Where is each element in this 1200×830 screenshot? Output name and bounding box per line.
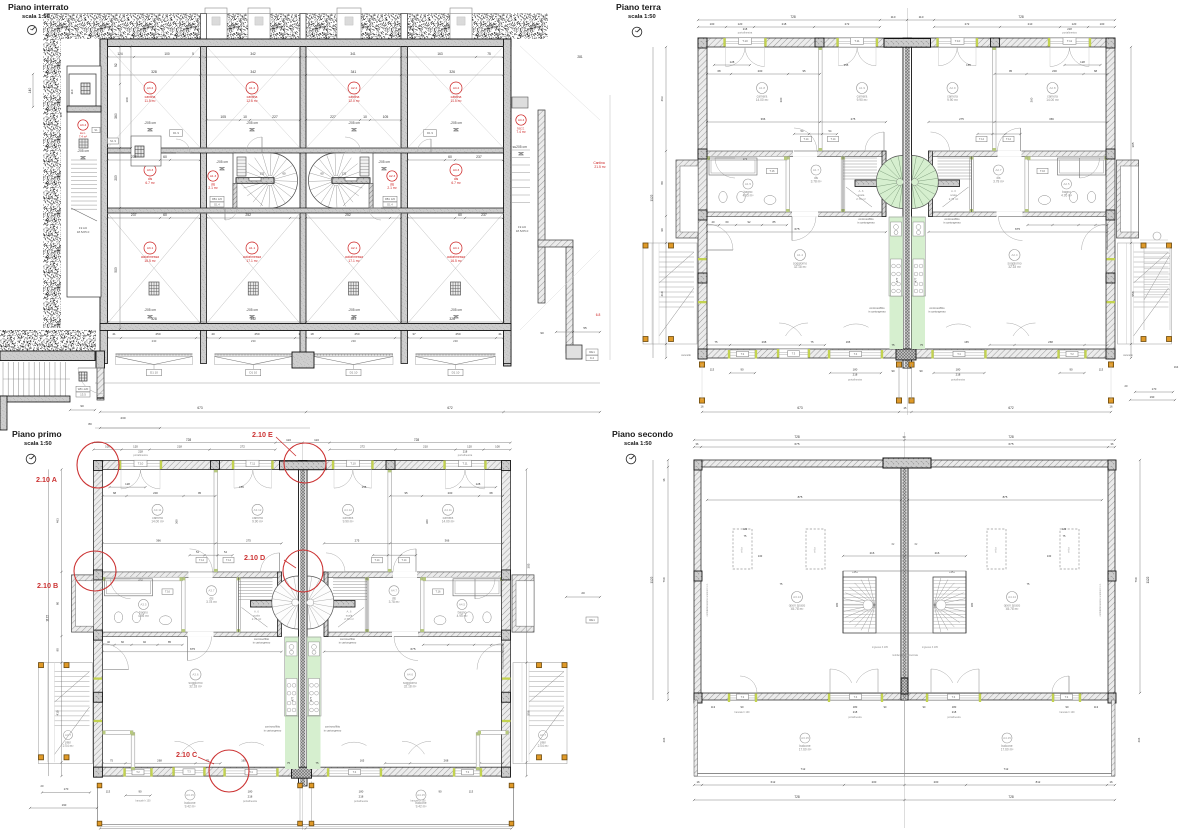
- svg-text:165: 165: [964, 340, 969, 344]
- svg-text:728: 728: [1008, 795, 1014, 799]
- svg-text:in cartongesso: in cartongesso: [857, 221, 875, 225]
- svg-text:268: 268: [157, 758, 162, 762]
- svg-text:728: 728: [414, 438, 420, 442]
- svg-text:675: 675: [794, 227, 799, 231]
- svg-text:9.4: 9.4: [590, 356, 594, 360]
- svg-text:-205 cm: -205 cm: [246, 308, 258, 312]
- svg-text:6.8: 6.8: [596, 313, 601, 317]
- svg-text:velux: velux: [994, 546, 998, 553]
- svg-text:200: 200: [934, 780, 939, 784]
- svg-text:272: 272: [240, 445, 245, 449]
- svg-text:326: 326: [449, 70, 455, 74]
- svg-text:272: 272: [743, 157, 748, 161]
- svg-text:A3.14: A3.14: [793, 595, 801, 599]
- svg-text:366: 366: [445, 538, 450, 542]
- svg-text:16.5 m²: 16.5 m²: [144, 259, 156, 263]
- svg-text:675: 675: [1015, 227, 1020, 231]
- svg-text:9.90 m²: 9.90 m²: [343, 520, 354, 524]
- svg-text:A2.7: A2.7: [995, 168, 1002, 172]
- svg-text:40: 40: [211, 332, 215, 336]
- svg-text:A4.15: A4.15: [417, 793, 425, 797]
- svg-text:T.4: T.4: [249, 770, 253, 774]
- svg-text:portafinestra: portafinestra: [1062, 31, 1077, 35]
- svg-text:90: 90: [138, 790, 142, 794]
- svg-text:9.42 m²: 9.42 m²: [416, 804, 427, 808]
- svg-text:216: 216: [870, 551, 875, 555]
- svg-text:S1 9: S1 9: [110, 139, 116, 143]
- svg-text:-205 cm: -205 cm: [77, 149, 89, 153]
- svg-text:portafinestra: portafinestra: [458, 453, 473, 457]
- svg-text:2.10 A: 2.10 A: [36, 475, 57, 484]
- svg-text:A4.2: A4.2: [453, 86, 460, 90]
- svg-text:95: 95: [404, 491, 408, 495]
- svg-text:227: 227: [330, 115, 336, 119]
- svg-text:controsoffitto: controsoffitto: [858, 217, 874, 221]
- svg-text:132: 132: [342, 172, 347, 176]
- svg-text:105: 105: [383, 115, 389, 119]
- svg-text:A1.3: A1.3: [210, 174, 217, 178]
- svg-text:30: 30: [903, 435, 906, 439]
- svg-text:812: 812: [1036, 780, 1041, 784]
- svg-text:37: 37: [412, 332, 416, 336]
- svg-text:2.76 m²: 2.76 m²: [344, 617, 354, 621]
- svg-text:190: 190: [1150, 395, 1155, 399]
- svg-text:875: 875: [798, 495, 803, 499]
- svg-text:bancale h 100: bancale h 100: [1059, 711, 1075, 714]
- svg-text:A4.1: A4.1: [453, 246, 460, 250]
- svg-text:218: 218: [463, 450, 468, 454]
- svg-text:60: 60: [163, 155, 167, 159]
- svg-text:20: 20: [581, 591, 585, 595]
- svg-text:164: 164: [1174, 365, 1179, 369]
- svg-text:T.4: T.4: [353, 770, 357, 774]
- svg-text:portafinestra: portafinestra: [848, 716, 862, 719]
- svg-text:32.18 m²: 32.18 m²: [794, 265, 807, 269]
- svg-text:1122: 1122: [1146, 576, 1150, 583]
- svg-text:218: 218: [138, 450, 143, 454]
- svg-text:9.90 m²: 9.90 m²: [252, 520, 263, 524]
- svg-text:9.90 m²: 9.90 m²: [857, 98, 868, 102]
- svg-text:bancale h 100: bancale h 100: [734, 711, 750, 714]
- svg-text:342: 342: [250, 52, 256, 56]
- svg-text:T.11: T.11: [250, 461, 256, 465]
- svg-text:A1.8: A1.8: [759, 86, 766, 90]
- svg-text:3.78 m²: 3.78 m²: [993, 179, 1004, 183]
- svg-text:237: 237: [481, 213, 487, 217]
- svg-text:in cartongesso: in cartongesso: [339, 641, 357, 645]
- svg-text:A3.15: A3.15: [801, 736, 809, 740]
- svg-text:17.60 m²: 17.60 m²: [799, 747, 812, 751]
- svg-text:cancello: cancello: [1123, 353, 1133, 357]
- svg-text:D1 9: D1 9: [427, 131, 433, 135]
- svg-text:T.4: T.4: [854, 352, 858, 356]
- svg-text:218: 218: [1067, 27, 1072, 31]
- svg-text:10: 10: [243, 115, 247, 119]
- svg-text:40: 40: [107, 640, 110, 644]
- svg-text:190: 190: [62, 803, 67, 807]
- svg-text:2.10 B: 2.10 B: [37, 581, 58, 590]
- svg-text:T.2: T.2: [741, 352, 745, 356]
- svg-text:275: 275: [851, 117, 856, 121]
- svg-text:180: 180: [853, 368, 858, 372]
- svg-text:4.95 m²: 4.95 m²: [743, 193, 754, 197]
- svg-text:90: 90: [540, 331, 544, 335]
- svg-text:230: 230: [351, 339, 356, 343]
- svg-text:68: 68: [1094, 69, 1098, 73]
- svg-text:675: 675: [794, 442, 799, 446]
- svg-text:1122: 1122: [650, 194, 654, 201]
- svg-text:165: 165: [360, 758, 365, 762]
- svg-text:90: 90: [438, 790, 442, 794]
- svg-text:218: 218: [952, 710, 957, 714]
- svg-text:180: 180: [952, 705, 957, 709]
- svg-text:6.7 m²: 6.7 m²: [145, 181, 155, 185]
- svg-text:92: 92: [143, 640, 146, 644]
- svg-text:68: 68: [489, 491, 493, 495]
- svg-text:controsoffitto: controsoffitto: [944, 217, 960, 221]
- svg-text:A4.14: A4.14: [1008, 595, 1016, 599]
- svg-text:275: 275: [246, 538, 251, 542]
- svg-text:760: 760: [662, 577, 666, 582]
- svg-text:45.78 m²: 45.78 m²: [791, 607, 804, 611]
- svg-text:D1 10: D1 10: [452, 371, 460, 375]
- svg-text:T.11: T.11: [1067, 39, 1073, 43]
- svg-text:218: 218: [177, 445, 182, 449]
- svg-text:16: 16: [696, 780, 700, 784]
- svg-text:1122: 1122: [46, 615, 50, 622]
- svg-text:T.11: T.11: [462, 461, 468, 465]
- svg-text:110: 110: [314, 438, 319, 442]
- svg-text:Piano interrato: Piano interrato: [8, 2, 69, 12]
- svg-text:216: 216: [935, 551, 940, 555]
- svg-text:113: 113: [1094, 705, 1099, 709]
- svg-text:16: 16: [1109, 780, 1113, 784]
- svg-text:controsoffitto: controsoffitto: [254, 637, 270, 641]
- svg-text:controsoffitto: controsoffitto: [325, 725, 341, 729]
- svg-text:477: 477: [914, 277, 918, 282]
- svg-text:341: 341: [351, 317, 357, 321]
- svg-text:30: 30: [512, 145, 516, 149]
- svg-text:portafinestra: portafinestra: [848, 379, 863, 382]
- svg-text:675: 675: [410, 647, 415, 651]
- svg-text:80: 80: [660, 181, 664, 185]
- svg-text:110: 110: [59, 112, 63, 117]
- svg-text:266: 266: [662, 737, 666, 742]
- svg-text:140: 140: [28, 88, 32, 94]
- svg-text:672: 672: [447, 406, 453, 410]
- svg-text:328: 328: [151, 317, 157, 321]
- svg-text:281: 281: [577, 55, 583, 59]
- svg-text:T.10: T.10: [350, 461, 356, 465]
- svg-text:728: 728: [794, 435, 800, 439]
- svg-text:180: 180: [248, 790, 253, 794]
- svg-text:T.2: T.2: [1065, 695, 1069, 699]
- svg-text:113: 113: [711, 705, 716, 709]
- svg-text:410: 410: [660, 291, 664, 296]
- svg-text:32.18 m²: 32.18 m²: [404, 684, 417, 688]
- svg-text:230: 230: [251, 339, 256, 343]
- svg-text:11.5 m²: 11.5 m²: [145, 99, 157, 103]
- svg-text:portafinestra: portafinestra: [133, 453, 148, 457]
- svg-text:RB1 120: RB1 120: [212, 197, 223, 201]
- svg-text:A3.4: A3.4: [80, 123, 87, 127]
- svg-text:T.14: T.14: [402, 558, 407, 562]
- svg-text:155: 155: [239, 485, 244, 489]
- svg-text:T.2: T.2: [1070, 352, 1074, 356]
- svg-text:14.00 m²: 14.00 m²: [442, 520, 455, 524]
- svg-text:712: 712: [801, 767, 806, 771]
- svg-text:41: 41: [498, 332, 502, 336]
- svg-text:120: 120: [1062, 527, 1067, 531]
- svg-text:120: 120: [738, 22, 743, 26]
- svg-text:+25+: +25+: [852, 571, 858, 574]
- svg-text:in cartongesso: in cartongesso: [943, 221, 961, 225]
- svg-text:200: 200: [153, 491, 158, 495]
- svg-text:velux: velux: [740, 546, 744, 553]
- svg-text:90: 90: [660, 228, 664, 232]
- svg-text:T.4: T.4: [952, 695, 956, 699]
- svg-text:T.3: T.3: [187, 770, 191, 774]
- svg-text:463: 463: [56, 518, 60, 523]
- svg-text:200: 200: [1052, 69, 1057, 73]
- svg-text:16: 16: [701, 405, 704, 409]
- svg-text:128: 128: [476, 482, 481, 486]
- svg-text:2.04 m²: 2.04 m²: [538, 744, 549, 748]
- svg-text:in cartongesso: in cartongesso: [324, 728, 342, 732]
- svg-text:218: 218: [248, 795, 253, 799]
- svg-text:1122: 1122: [650, 576, 654, 583]
- svg-text:477: 477: [309, 696, 313, 701]
- svg-text:360: 360: [114, 113, 118, 119]
- svg-text:2.76 m²: 2.76 m²: [949, 197, 959, 201]
- svg-text:controsoffitto: controsoffitto: [340, 637, 356, 641]
- svg-text:16: 16: [1110, 405, 1113, 409]
- svg-text:T.2: T.2: [741, 695, 745, 699]
- svg-text:41: 41: [112, 332, 116, 336]
- svg-text:477: 477: [291, 696, 295, 701]
- svg-text:mobile/parete attrezzata: mobile/parete attrezzata: [892, 654, 918, 657]
- svg-text:17.1 m²: 17.1 m²: [348, 259, 360, 263]
- svg-text:90: 90: [891, 369, 895, 373]
- svg-text:100: 100: [1100, 22, 1105, 26]
- svg-text:18: 18: [310, 332, 314, 336]
- svg-text:T.14: T.14: [1006, 137, 1011, 141]
- svg-text:210: 210: [1028, 22, 1033, 26]
- svg-text:155: 155: [362, 485, 367, 489]
- svg-text:A4.12: A4.12: [344, 508, 352, 512]
- svg-text:in cartongesso: in cartongesso: [928, 310, 946, 314]
- svg-text:230: 230: [453, 339, 458, 343]
- svg-text:A3.5: A3.5: [140, 602, 147, 606]
- svg-text:328: 328: [151, 70, 157, 74]
- svg-text:14.00 m²: 14.00 m²: [151, 520, 164, 524]
- svg-text:210: 210: [423, 445, 428, 449]
- svg-text:305: 305: [527, 563, 531, 568]
- svg-text:728: 728: [1008, 435, 1014, 439]
- svg-text:T.4: T.4: [854, 695, 858, 699]
- svg-text:230: 230: [152, 339, 157, 343]
- svg-text:90: 90: [741, 705, 744, 709]
- svg-text:170: 170: [1152, 387, 1157, 391]
- svg-text:875: 875: [1003, 495, 1008, 499]
- svg-text:95: 95: [198, 491, 202, 495]
- svg-text:WD-120: WD-120: [78, 387, 89, 391]
- svg-text:60: 60: [163, 213, 167, 217]
- svg-text:A1.4: A1.4: [797, 253, 804, 257]
- svg-text:D1.4: D1.4: [214, 203, 220, 207]
- svg-text:RE1: RE1: [589, 618, 595, 622]
- svg-text:2.04 m²: 2.04 m²: [63, 744, 74, 748]
- svg-text:90: 90: [80, 404, 84, 408]
- svg-text:477: 477: [895, 277, 899, 282]
- svg-text:218: 218: [782, 22, 787, 26]
- svg-text:D1 9: D1 9: [173, 131, 179, 135]
- svg-text:T.2: T.2: [466, 770, 470, 774]
- svg-text:A2.3: A2.3: [389, 174, 396, 178]
- svg-text:110: 110: [286, 438, 291, 442]
- svg-text:T.3: T.3: [792, 352, 796, 356]
- svg-text:9.42 m²: 9.42 m²: [185, 804, 196, 808]
- svg-text:-205 cm: -205 cm: [450, 308, 462, 312]
- svg-text:360: 360: [1030, 97, 1034, 102]
- svg-text:60: 60: [458, 213, 462, 217]
- svg-text:68: 68: [113, 491, 117, 495]
- svg-text:bancale h 100: bancale h 100: [410, 800, 426, 803]
- svg-text:120: 120: [133, 445, 138, 449]
- svg-text:D1 10: D1 10: [350, 371, 358, 375]
- svg-text:14.00 m²: 14.00 m²: [756, 98, 769, 102]
- svg-text:237: 237: [476, 155, 482, 159]
- svg-text:4.95 m²: 4.95 m²: [138, 614, 149, 618]
- svg-text:200: 200: [872, 780, 877, 784]
- svg-text:75: 75: [316, 761, 319, 765]
- svg-text:ingresso h 105: ingresso h 105: [922, 646, 938, 649]
- svg-text:180: 180: [956, 368, 961, 372]
- svg-text:D1.4: D1.4: [387, 203, 393, 207]
- svg-text:+25+: +25+: [949, 571, 955, 574]
- svg-text:3.78 m²: 3.78 m²: [811, 179, 822, 183]
- svg-text:128: 128: [730, 60, 735, 64]
- svg-text:Piano primo: Piano primo: [12, 429, 62, 439]
- svg-text:A3.6: A3.6: [192, 672, 199, 676]
- svg-text:218: 218: [743, 27, 748, 31]
- svg-text:100: 100: [125, 97, 129, 102]
- svg-text:portafinestra: portafinestra: [947, 716, 961, 719]
- svg-text:128: 128: [1080, 60, 1085, 64]
- svg-text:326: 326: [449, 317, 455, 321]
- svg-text:T.16: T.16: [770, 169, 775, 173]
- svg-text:360: 360: [779, 97, 783, 102]
- svg-text:-205 cm: -205 cm: [348, 308, 360, 312]
- svg-text:9.90 m²: 9.90 m²: [947, 98, 958, 102]
- svg-text:113: 113: [710, 368, 715, 372]
- svg-text:272: 272: [845, 22, 850, 26]
- svg-text:250: 250: [455, 332, 460, 336]
- svg-text:7.4 m²: 7.4 m²: [516, 130, 526, 134]
- svg-text:60: 60: [321, 172, 324, 176]
- svg-text:130: 130: [758, 554, 763, 558]
- svg-text:503: 503: [114, 267, 118, 273]
- svg-text:-205 cm: -205 cm: [450, 121, 462, 125]
- svg-text:90: 90: [1069, 368, 1073, 372]
- svg-text:A3.1: A3.1: [147, 246, 154, 250]
- svg-text:A2.2: A2.2: [351, 86, 358, 90]
- svg-text:T.14: T.14: [226, 558, 231, 562]
- svg-text:90: 90: [740, 368, 744, 372]
- svg-text:252: 252: [345, 213, 351, 217]
- svg-text:controsoffitto: controsoffitto: [929, 306, 945, 310]
- svg-text:95: 95: [802, 69, 806, 73]
- svg-text:728: 728: [790, 15, 796, 19]
- svg-text:controsoffitto: controsoffitto: [265, 725, 281, 729]
- svg-text:230: 230: [120, 416, 125, 420]
- svg-text:-205 cm: -205 cm: [216, 160, 228, 164]
- svg-text:A4.11: A4.11: [444, 508, 452, 512]
- svg-text:728: 728: [1018, 15, 1024, 19]
- svg-text:A3.12: A3.12: [254, 508, 262, 512]
- svg-text:463: 463: [660, 96, 664, 101]
- svg-text:100: 100: [164, 52, 170, 56]
- svg-text:T.10: T.10: [138, 461, 144, 465]
- svg-text:D1 10: D1 10: [150, 371, 158, 375]
- svg-text:T.14: T.14: [375, 558, 380, 562]
- svg-text:T.14: T.14: [199, 558, 204, 562]
- svg-text:180: 180: [853, 705, 858, 709]
- svg-text:95: 95: [1009, 69, 1013, 73]
- svg-text:110: 110: [70, 89, 74, 94]
- svg-text:2.76 m²: 2.76 m²: [856, 197, 866, 201]
- svg-text:2.1 m²: 2.1 m²: [387, 186, 397, 190]
- svg-text:266: 266: [1137, 737, 1141, 742]
- svg-text:272: 272: [965, 22, 970, 26]
- svg-text:11.5 m²: 11.5 m²: [451, 99, 463, 103]
- svg-text:250: 250: [354, 332, 359, 336]
- svg-text:RB1 120: RB1 120: [385, 197, 396, 201]
- svg-text:712: 712: [1004, 767, 1009, 771]
- svg-text:203: 203: [114, 175, 118, 181]
- svg-text:120: 120: [743, 527, 748, 531]
- svg-text:250: 250: [155, 332, 160, 336]
- svg-text:ingresso h 105: ingresso h 105: [872, 646, 888, 649]
- svg-text:-205 cm: -205 cm: [144, 308, 156, 312]
- svg-text:A4.4: A4.4: [518, 118, 525, 122]
- svg-text:170: 170: [64, 787, 69, 791]
- svg-text:80: 80: [88, 422, 92, 426]
- svg-text:100: 100: [495, 445, 500, 449]
- svg-text:cancello: cancello: [681, 353, 691, 357]
- svg-text:3.78 m²: 3.78 m²: [206, 600, 217, 604]
- svg-text:92: 92: [114, 63, 118, 67]
- svg-text:85: 85: [773, 220, 776, 224]
- svg-text:in cartongesso: in cartongesso: [868, 310, 886, 314]
- svg-text:A2.8: A2.8: [1049, 86, 1056, 90]
- svg-text:portafinestra: portafinestra: [951, 379, 966, 382]
- svg-text:portafinestra: portafinestra: [354, 800, 369, 803]
- svg-text:A3.2: A3.2: [147, 86, 154, 90]
- svg-text:75: 75: [715, 340, 718, 344]
- svg-text:163: 163: [437, 52, 443, 56]
- svg-text:T.16: T.16: [1040, 169, 1045, 173]
- svg-text:558: 558: [527, 710, 531, 715]
- svg-text:113: 113: [1099, 368, 1104, 372]
- svg-text:A2.5: A2.5: [1063, 182, 1070, 186]
- svg-text:155: 155: [844, 63, 849, 67]
- svg-text:673: 673: [797, 406, 803, 410]
- svg-text:366: 366: [1049, 117, 1054, 121]
- svg-text:A1.2: A1.2: [249, 86, 256, 90]
- svg-text:180: 180: [359, 790, 364, 794]
- svg-text:5: 5: [192, 52, 194, 56]
